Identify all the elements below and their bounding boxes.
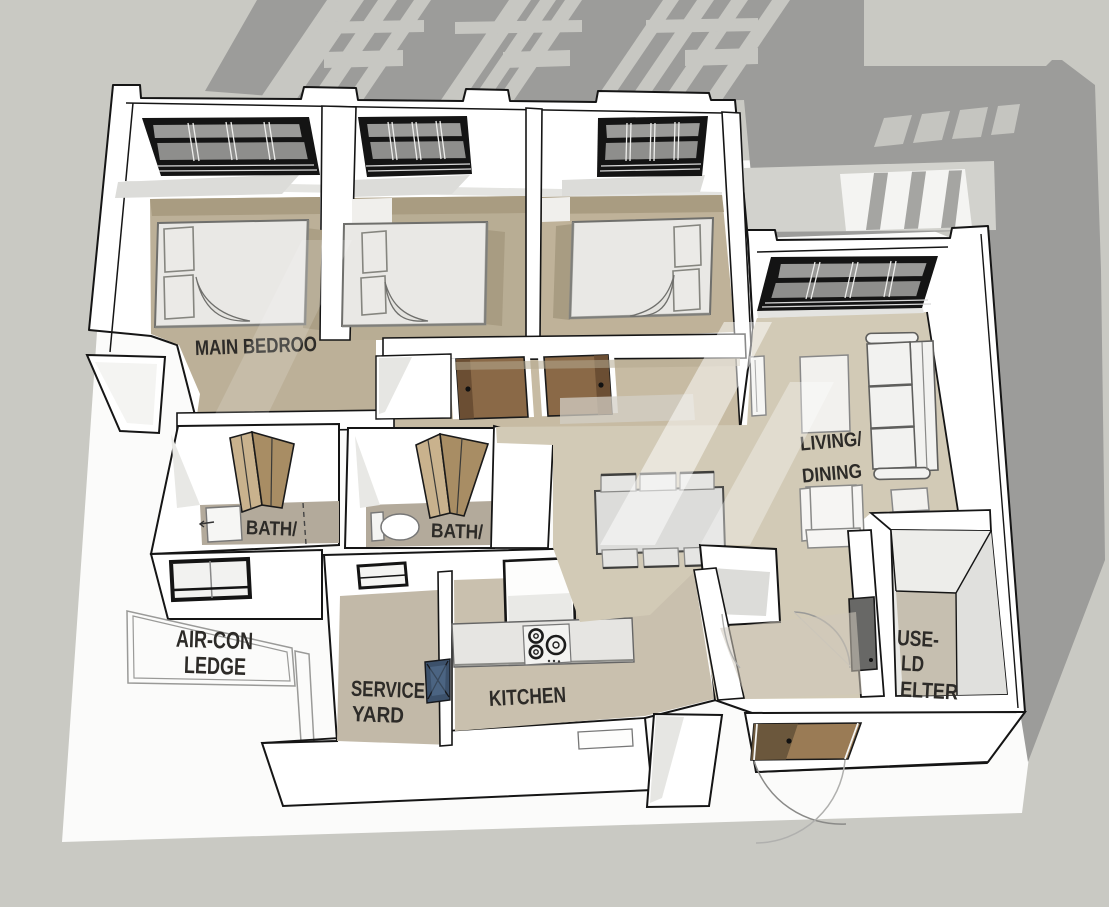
- svg-text:YARD: YARD: [352, 701, 405, 728]
- svg-text:SERVICE: SERVICE: [351, 676, 426, 704]
- svg-text:BATH/: BATH/: [431, 520, 484, 544]
- svg-text:LEDGE: LEDGE: [184, 652, 247, 681]
- svg-text:AIR-CON: AIR-CON: [176, 626, 254, 656]
- svg-text:LD: LD: [900, 650, 924, 676]
- svg-text:BATH/: BATH/: [246, 517, 298, 541]
- svg-text:ELTER: ELTER: [899, 677, 958, 705]
- svg-text:KITCHEN: KITCHEN: [488, 682, 566, 711]
- svg-text:USE-: USE-: [896, 625, 939, 652]
